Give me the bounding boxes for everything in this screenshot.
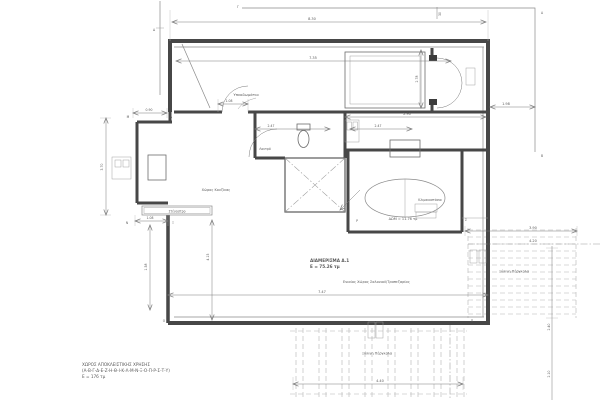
french-door-leaf-bottom [437,83,462,108]
corner-letter-beta: Β [541,154,543,158]
corner-letter-xi: Ξ [172,221,174,225]
label-bathroom: Λουτρό [259,147,271,151]
dim-label-440: 4.40 [376,379,384,383]
corner-letter-omicron: Ο [163,319,166,323]
tag-pergola-right-b [479,250,486,263]
corner-letter-rho: Ρ [356,219,358,223]
toilet-bowl-icon [298,131,309,148]
pergola-bottom-hatch [290,325,467,400]
pergola-bottom-edges [290,331,467,394]
corner-letter-nu: Ν [126,221,129,225]
doors [222,58,462,157]
dim-label-158: 1.58 [144,264,148,271]
dim-label-420: 4.20 [529,239,537,243]
dim-label-735: 7.35 [309,56,317,60]
corner-letter-sigma: Σ [465,218,467,222]
wardrobe-inner [350,56,420,104]
floor-plan-screenshot: 8.30 30 7.35 2.78 2.90 1.98 1.08 0.90 2.… [0,0,600,400]
dim-label-290: 2.90 [403,112,411,116]
corner-letter-alpha: Α [541,11,544,15]
corner-letter-delta: Δ [153,28,156,32]
label-room-area: ΔΩΜ = 11.76 τμ [389,217,418,221]
wardrobe-outer [345,52,425,108]
bathroom-door-swing [249,129,277,157]
ramp-diagonal [182,44,210,108]
dim-label-247b: 2.47 [375,124,382,128]
dim-label-247a: 2.47 [268,124,275,128]
dim-label-747: 7.47 [318,290,326,294]
pergola-bottom-joists [296,328,464,398]
note-line-3: Ε = 176 τμ [82,374,106,379]
shaft-cross [285,158,345,212]
dim-label-210: 2.10 [547,371,551,378]
dim-label-830: 8.30 [308,17,316,21]
dim-label-108b: 1.08 [147,216,154,220]
stair-step-1 [415,204,437,212]
dim-label-090: 0.90 [146,108,153,112]
corner-letter-gamma: Γ [237,5,239,9]
note-line-2: (Α-Β-Γ-Δ-Ε-Ζ-Η-Θ-Ι-Κ-Λ-Μ-Ν-Ξ-Ο-Π-Ρ-Σ-Τ-Υ… [82,368,170,373]
tag-french-door [466,68,475,85]
dim-label-240: 2.40 [547,324,551,331]
label-canopy: Στέγαστρο [168,210,185,214]
fixtures [142,44,445,218]
tag-pergola-right-a [470,250,477,263]
note-line-1: ΧΩΡΟΣ ΑΠΟΚΛΕΙΣΤΙΚΗΣ ΧΡΗΣΗΣ [82,362,150,367]
boundary-top-right [242,8,535,152]
window-tag-left-b [123,160,129,167]
label-bedroom: Υπνοδωμάτιο [233,92,259,97]
label-kitchen: Χώρος Κουζίνας [202,188,231,192]
label-living: Ενιαίος Χώρος Σαλονιού/Τραπεζαρίας [343,280,410,284]
door-jamb-top [429,55,437,61]
corner-letter-mu: Μ [127,115,130,119]
floor-plan-canvas: 8.30 30 7.35 2.78 2.90 1.98 1.08 0.90 2.… [0,0,600,400]
door-jamb-bottom [429,99,437,105]
wall-bathroom [255,112,345,158]
dim-label-390: 3.90 [529,226,537,230]
dim-label-370: 3.70 [100,164,104,171]
walls [137,41,490,325]
dim-label-415: 4.15 [206,254,210,261]
corner-letters: Α Β Γ Δ Λ Μ Ν Ξ Ο Π Ρ Σ [126,5,544,323]
dim-label-278: 2.78 [415,76,419,83]
label-staircase: Κλιμακοστάσιο [418,198,442,202]
french-door-leaf-top [437,58,462,83]
bedroom-label-leader [238,98,256,109]
dim-label-30: 30 [438,12,442,16]
label-apartment-name: ΔΙΑΜΕΡΙΣΜΑ Δ.1 [310,258,349,263]
kitchen-counter [148,155,166,180]
dim-label-198: 1.98 [502,102,510,106]
note-block: ΧΩΡΟΣ ΑΠΟΚΛΕΙΣΤΙΚΗΣ ΧΡΗΣΗΣ (Α-Β-Γ-Δ-Ε-Ζ-… [82,362,170,379]
label-pergola-right: Ξύλινη Πέργκολα [499,270,530,274]
dim-label-108a: 1.08 [226,99,233,103]
label-apartment-area: Ε = 75.26 τμ [310,264,340,269]
stair-step-2 [416,212,436,218]
window-tag-left-a [115,160,121,167]
stair-direction-arrow [340,190,360,210]
light-shaft [285,158,345,212]
wall-kitchen-block [137,112,172,203]
corner-letter-lambda: Λ [170,115,173,119]
label-pergola-bottom: Ξύλινη Πέργκολα [362,352,393,356]
